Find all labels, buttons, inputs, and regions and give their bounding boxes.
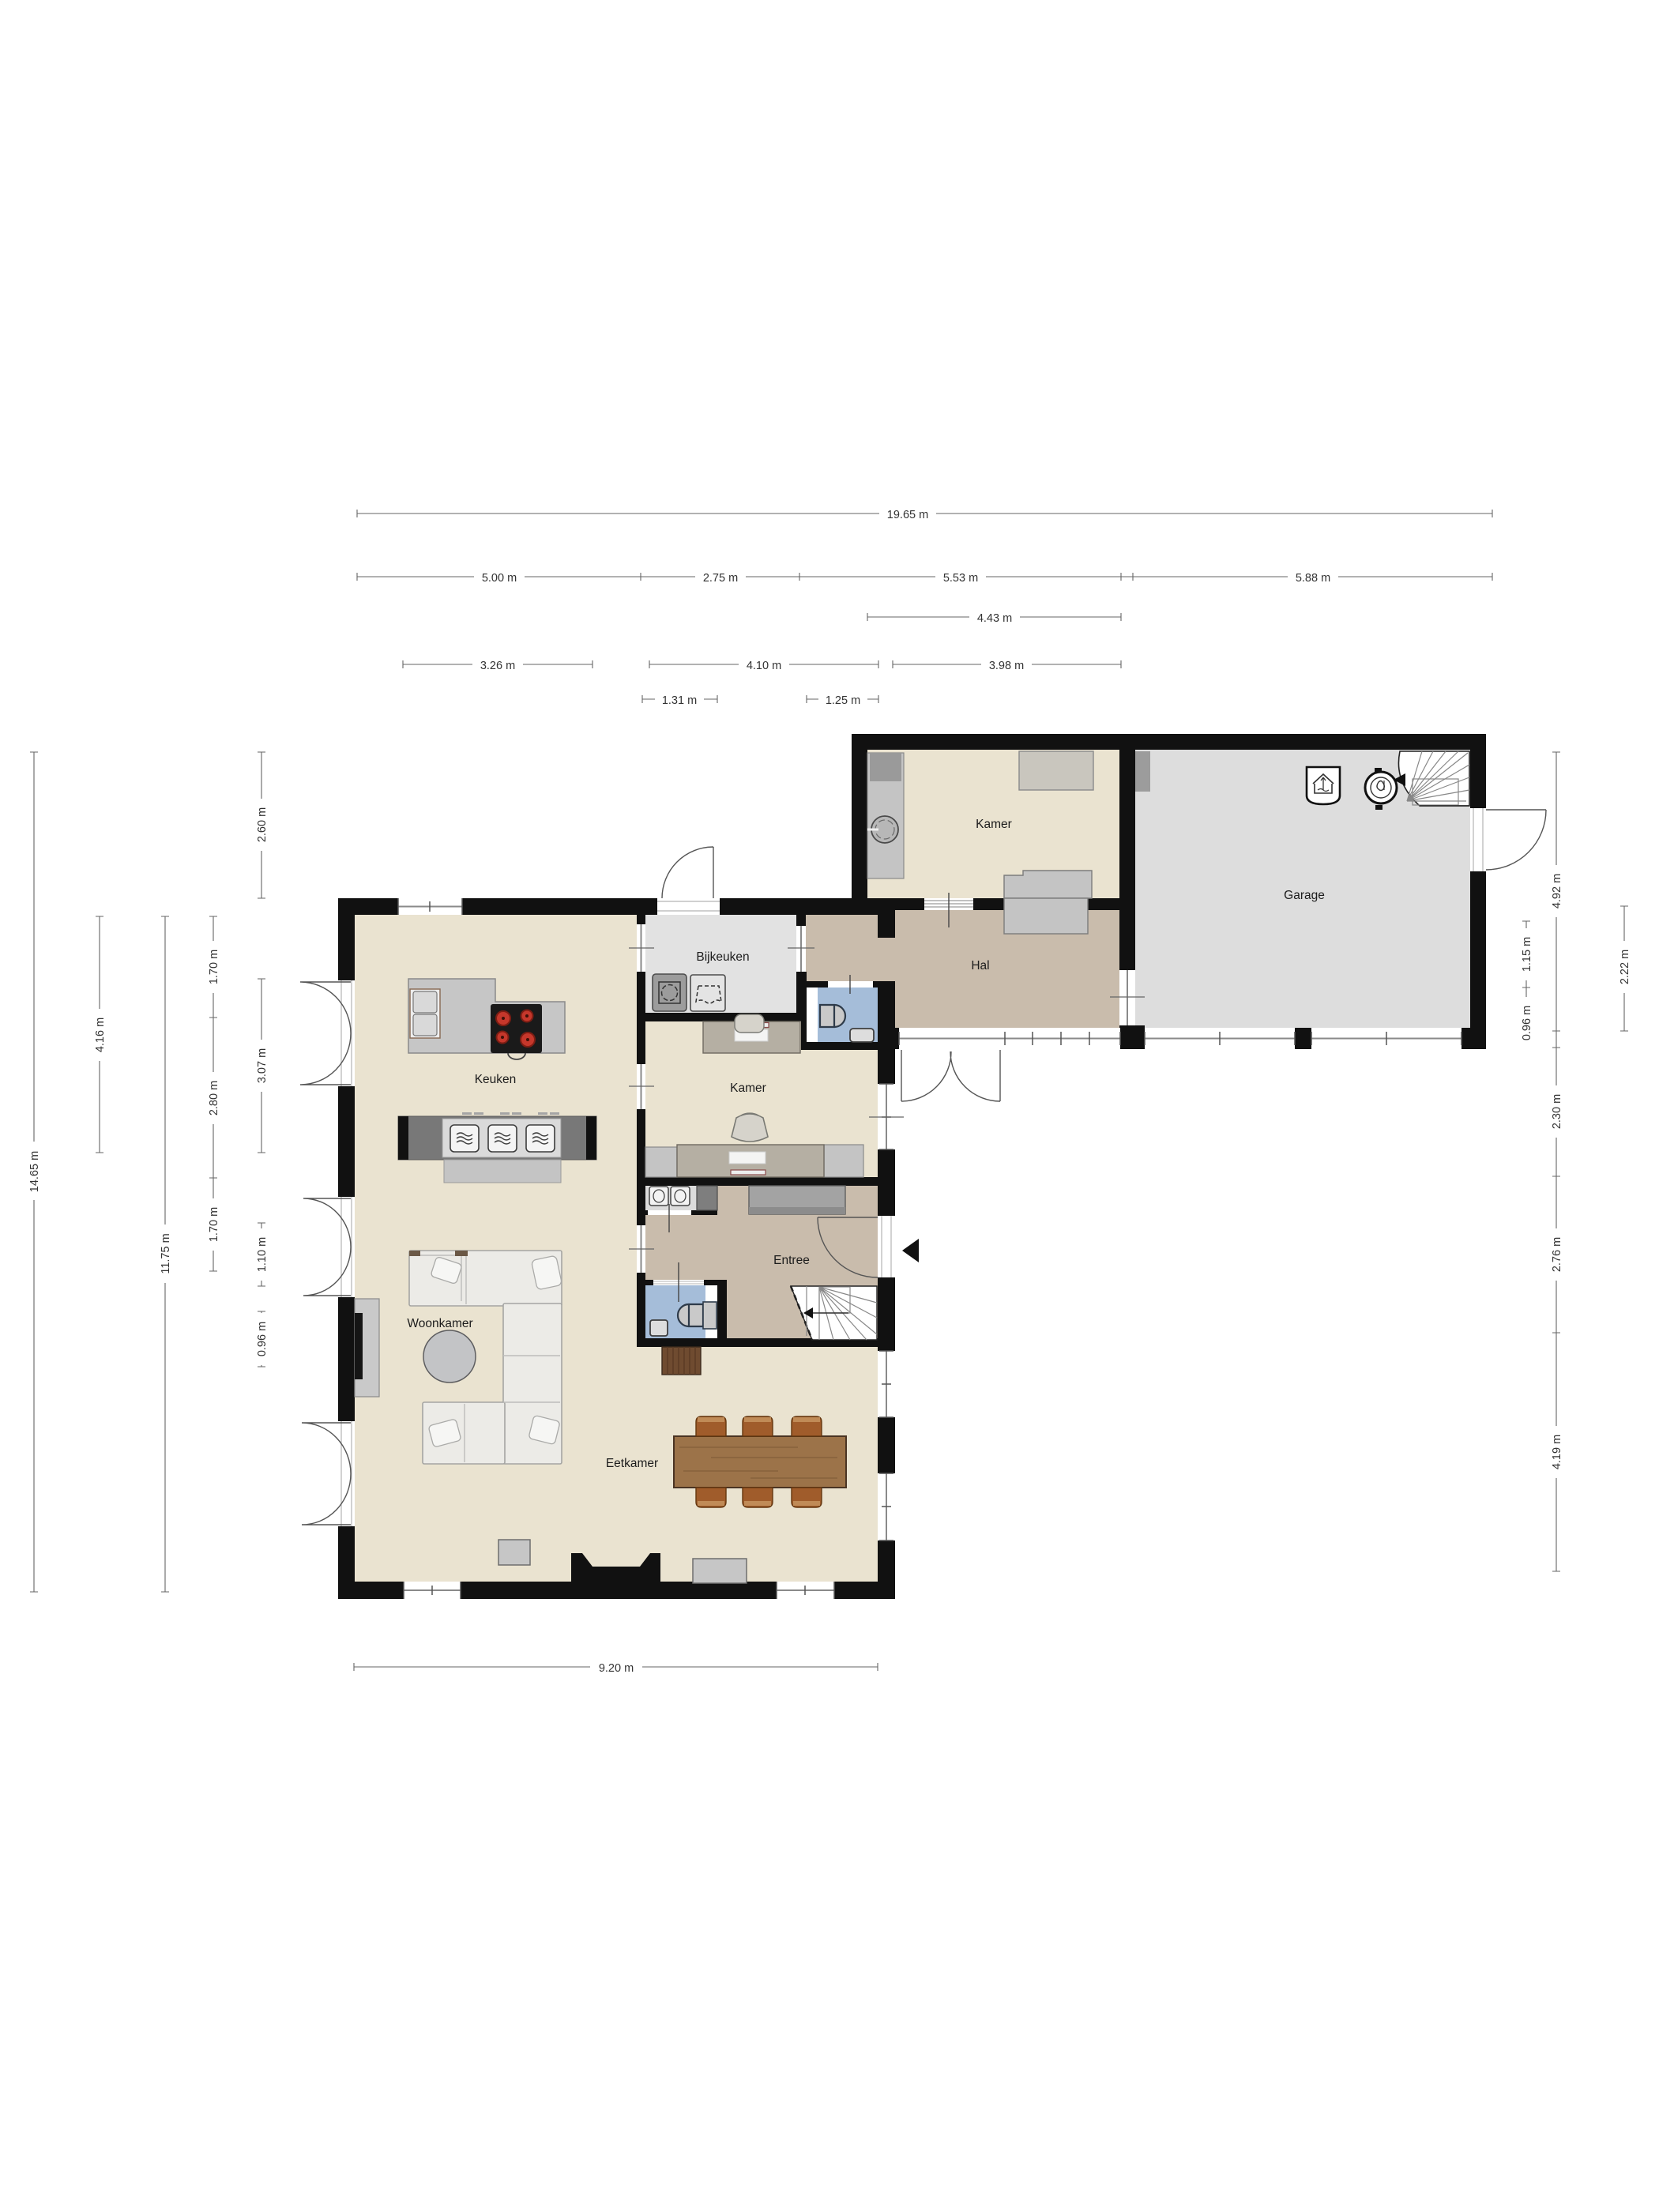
svg-text:Bijkeuken: Bijkeuken [696, 950, 749, 964]
svg-text:3.98 m: 3.98 m [989, 660, 1024, 672]
svg-text:1.70 m: 1.70 m [208, 950, 220, 984]
svg-text:2.75 m: 2.75 m [703, 572, 738, 585]
svg-text:1.31 m: 1.31 m [662, 694, 697, 707]
svg-text:Kamer: Kamer [730, 1082, 766, 1095]
svg-text:1.10 m: 1.10 m [256, 1237, 269, 1272]
svg-text:5.00 m: 5.00 m [482, 572, 517, 585]
svg-text:1.25 m: 1.25 m [826, 694, 860, 707]
svg-text:2.22 m: 2.22 m [1619, 950, 1631, 984]
svg-text:4.19 m: 4.19 m [1551, 1435, 1563, 1469]
svg-text:Kamer: Kamer [976, 818, 1012, 831]
svg-text:2.76 m: 2.76 m [1551, 1237, 1563, 1272]
svg-text:4.16 m: 4.16 m [94, 1018, 107, 1052]
svg-text:11.75 m: 11.75 m [160, 1233, 172, 1273]
svg-text:2.80 m: 2.80 m [208, 1081, 220, 1115]
svg-text:Woonkamer: Woonkamer [407, 1317, 472, 1330]
svg-text:Eetkamer: Eetkamer [606, 1457, 658, 1470]
svg-text:14.65 m: 14.65 m [28, 1151, 41, 1192]
svg-text:4.10 m: 4.10 m [747, 660, 781, 672]
svg-text:2.60 m: 2.60 m [256, 807, 269, 842]
svg-text:19.65 m: 19.65 m [887, 509, 928, 521]
svg-text:3.07 m: 3.07 m [256, 1048, 269, 1083]
svg-text:Keuken: Keuken [475, 1073, 517, 1086]
svg-text:5.53 m: 5.53 m [943, 572, 978, 585]
svg-text:3.26 m: 3.26 m [480, 660, 515, 672]
svg-text:9.20 m: 9.20 m [599, 1662, 634, 1675]
svg-text:1.70 m: 1.70 m [208, 1207, 220, 1242]
svg-text:5.88 m: 5.88 m [1296, 572, 1330, 585]
svg-text:0.96 m: 0.96 m [1521, 1006, 1533, 1040]
svg-text:4.43 m: 4.43 m [977, 612, 1012, 625]
svg-text:Hal: Hal [971, 959, 989, 972]
svg-text:Garage: Garage [1284, 889, 1325, 902]
svg-text:Entree: Entree [773, 1254, 810, 1267]
svg-text:1.15 m: 1.15 m [1521, 937, 1533, 972]
svg-text:2.30 m: 2.30 m [1551, 1094, 1563, 1129]
svg-text:0.96 m: 0.96 m [256, 1322, 269, 1356]
svg-text:4.92 m: 4.92 m [1551, 874, 1563, 908]
